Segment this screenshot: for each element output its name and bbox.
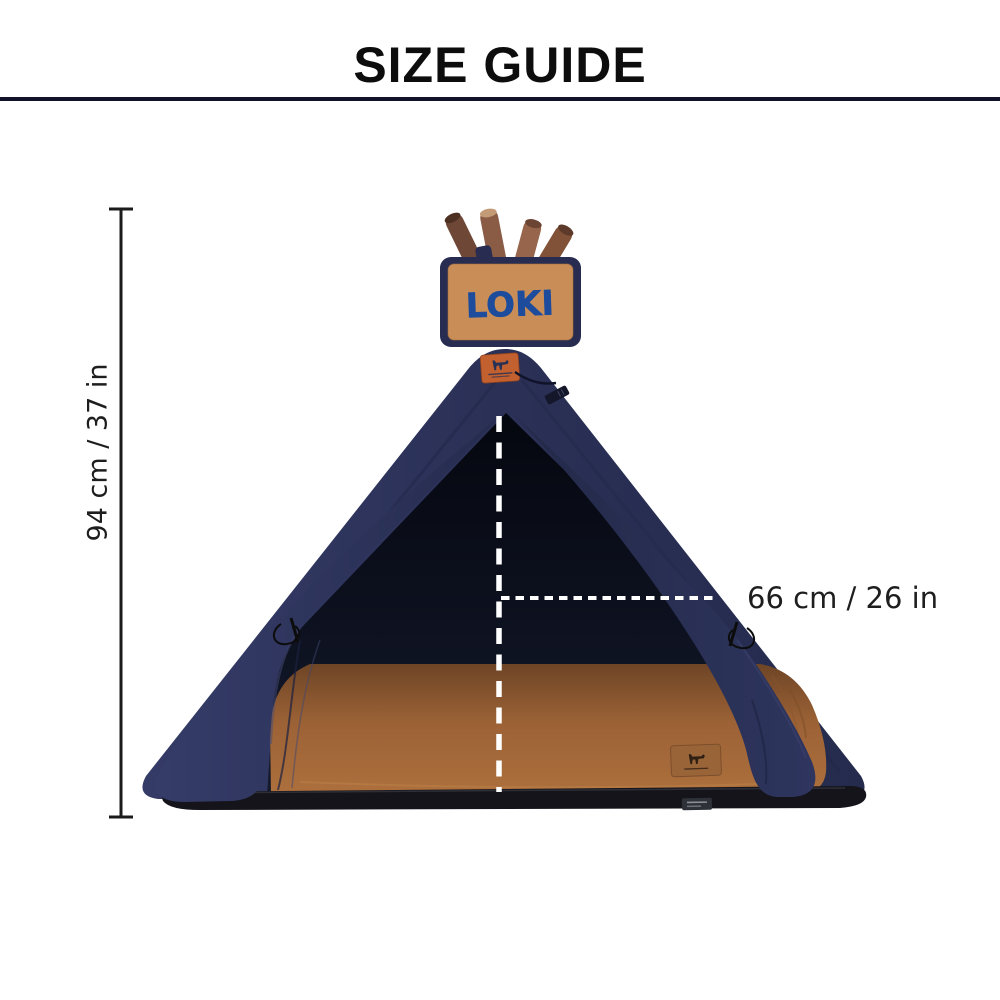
mat-dog-logo-patch-icon — [670, 744, 721, 777]
teepee-illustration: LOKI — [0, 0, 1000, 1000]
width-label: 66 cm / 26 in — [747, 581, 938, 615]
name-sign-text: LOKI — [465, 283, 555, 326]
height-label: 94 cm / 37 in — [83, 310, 114, 596]
name-sign: LOKI — [440, 257, 581, 347]
dog-logo-patch-icon — [480, 353, 520, 384]
base-strip-tag — [682, 798, 712, 811]
size-guide-page: SIZE GUIDE — [0, 0, 1000, 1000]
